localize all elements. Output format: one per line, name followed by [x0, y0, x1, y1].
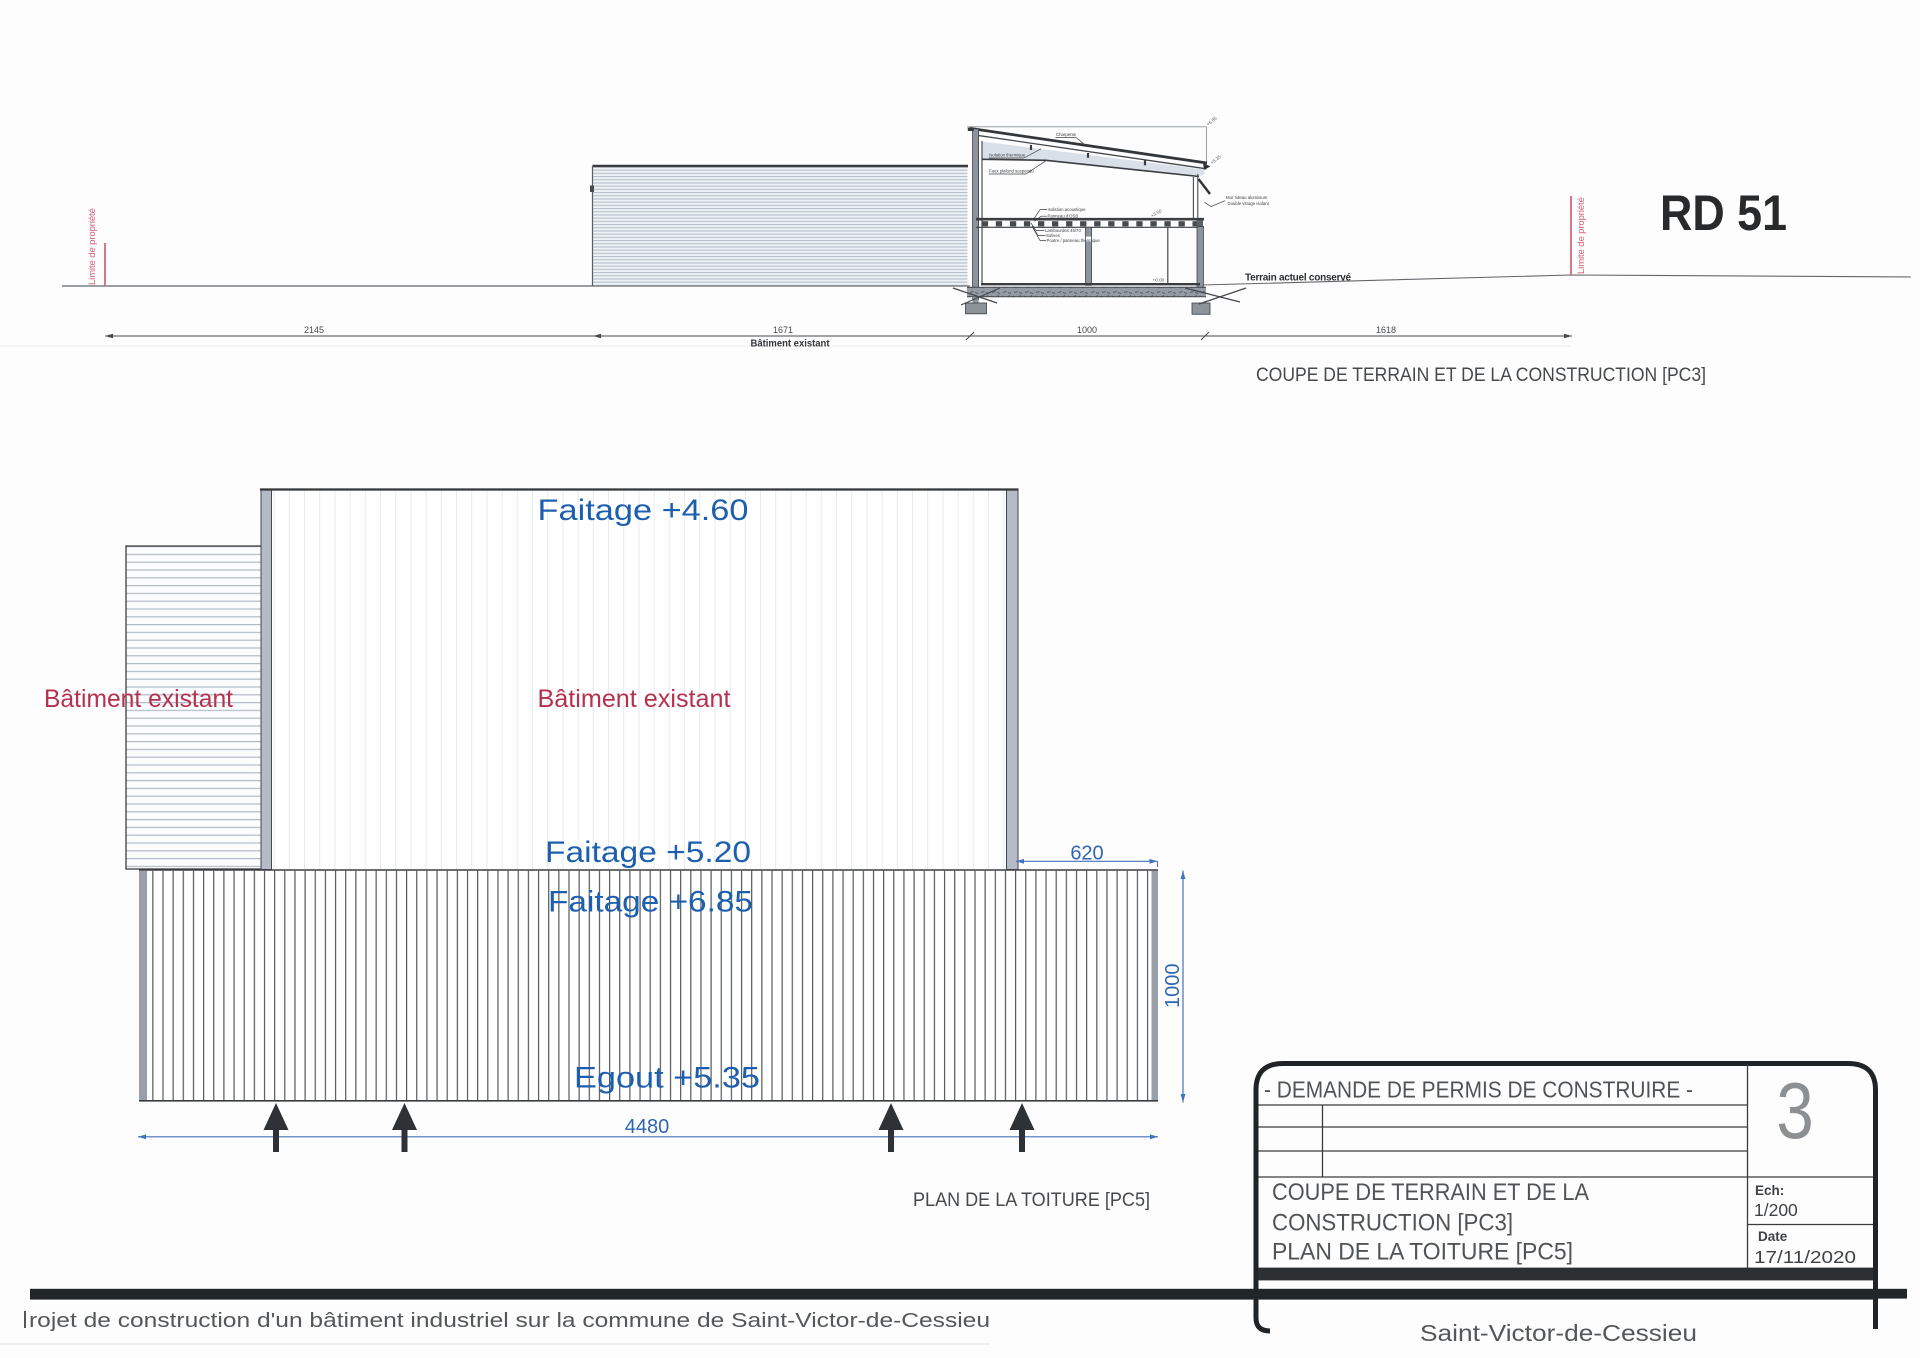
svg-text:Mur rideau aluminium: Mur rideau aluminium	[1226, 195, 1268, 200]
svg-text:COUPE DE TERRAIN ET DE LA CONS: COUPE DE TERRAIN ET DE LA CONSTRUCTION […	[1256, 364, 1706, 386]
svg-text:Date: Date	[1758, 1229, 1788, 1244]
svg-text:Double vitrage isolant: Double vitrage isolant	[1228, 201, 1270, 206]
svg-text:Panneau d'OSB: Panneau d'OSB	[1048, 214, 1079, 219]
svg-text:- DEMANDE DE PERMIS DE CONSTRU: - DEMANDE DE PERMIS DE CONSTRUIRE -	[1264, 1077, 1693, 1103]
svg-text:Saint-Victor-de-Cessieu: Saint-Victor-de-Cessieu	[1420, 1320, 1697, 1346]
svg-text:Faitage +5.20: Faitage +5.20	[545, 836, 751, 869]
svg-text:Poutre / panneau thermique: Poutre / panneau thermique	[1047, 238, 1101, 243]
svg-text:1/200: 1/200	[1754, 1200, 1798, 1220]
svg-text:Limite de propriété: Limite de propriété	[87, 208, 98, 285]
svg-text:Limite de propriété: Limite de propriété	[1576, 197, 1587, 274]
svg-text:17/11/2020: 17/11/2020	[1754, 1247, 1856, 1267]
svg-text:+0.00: +0.00	[1153, 278, 1165, 283]
svg-text:2145: 2145	[304, 325, 324, 335]
svg-text:3: 3	[1776, 1065, 1813, 1155]
svg-text:1000: 1000	[1162, 964, 1184, 1009]
svg-text:Bâtiment existant: Bâtiment existant	[44, 685, 233, 713]
svg-text:4480: 4480	[625, 1116, 670, 1138]
svg-text:Isolation thermique: Isolation thermique	[989, 153, 1026, 158]
svg-text:Bâtiment existant: Bâtiment existant	[538, 685, 731, 713]
svg-text:Ech:: Ech:	[1755, 1183, 1784, 1198]
svg-text:PLAN DE LA TOITURE [PC5]: PLAN DE LA TOITURE [PC5]	[913, 1189, 1150, 1211]
svg-text:Faitage +4.60: Faitage +4.60	[538, 494, 749, 527]
svg-text:PLAN DE LA TOITURE [PC5]: PLAN DE LA TOITURE [PC5]	[1272, 1239, 1573, 1266]
svg-text:Terrain actuel conservé: Terrain actuel conservé	[1245, 273, 1352, 284]
svg-text:COUPE DE TERRAIN ET DE LA: COUPE DE TERRAIN ET DE LA	[1272, 1179, 1590, 1206]
svg-text:1671: 1671	[773, 325, 793, 335]
svg-text:Isolation acoustique: Isolation acoustique	[1048, 207, 1087, 212]
svg-text:CONSTRUCTION [PC3]: CONSTRUCTION [PC3]	[1272, 1210, 1513, 1237]
svg-text:Bâtiment existant: Bâtiment existant	[751, 339, 831, 350]
svg-text:1000: 1000	[1077, 325, 1097, 335]
svg-text:Egout +5.35: Egout +5.35	[574, 1062, 760, 1095]
svg-text:620: 620	[1070, 843, 1103, 865]
svg-text:Faitage +6.85: Faitage +6.85	[548, 886, 753, 919]
svg-text:Charpente: Charpente	[1056, 132, 1077, 137]
svg-text:rojet de construction d'un bât: rojet de construction d'un bâtiment indu…	[29, 1309, 990, 1332]
svg-text:RD 51: RD 51	[1660, 185, 1787, 241]
svg-text:1618: 1618	[1376, 325, 1396, 335]
